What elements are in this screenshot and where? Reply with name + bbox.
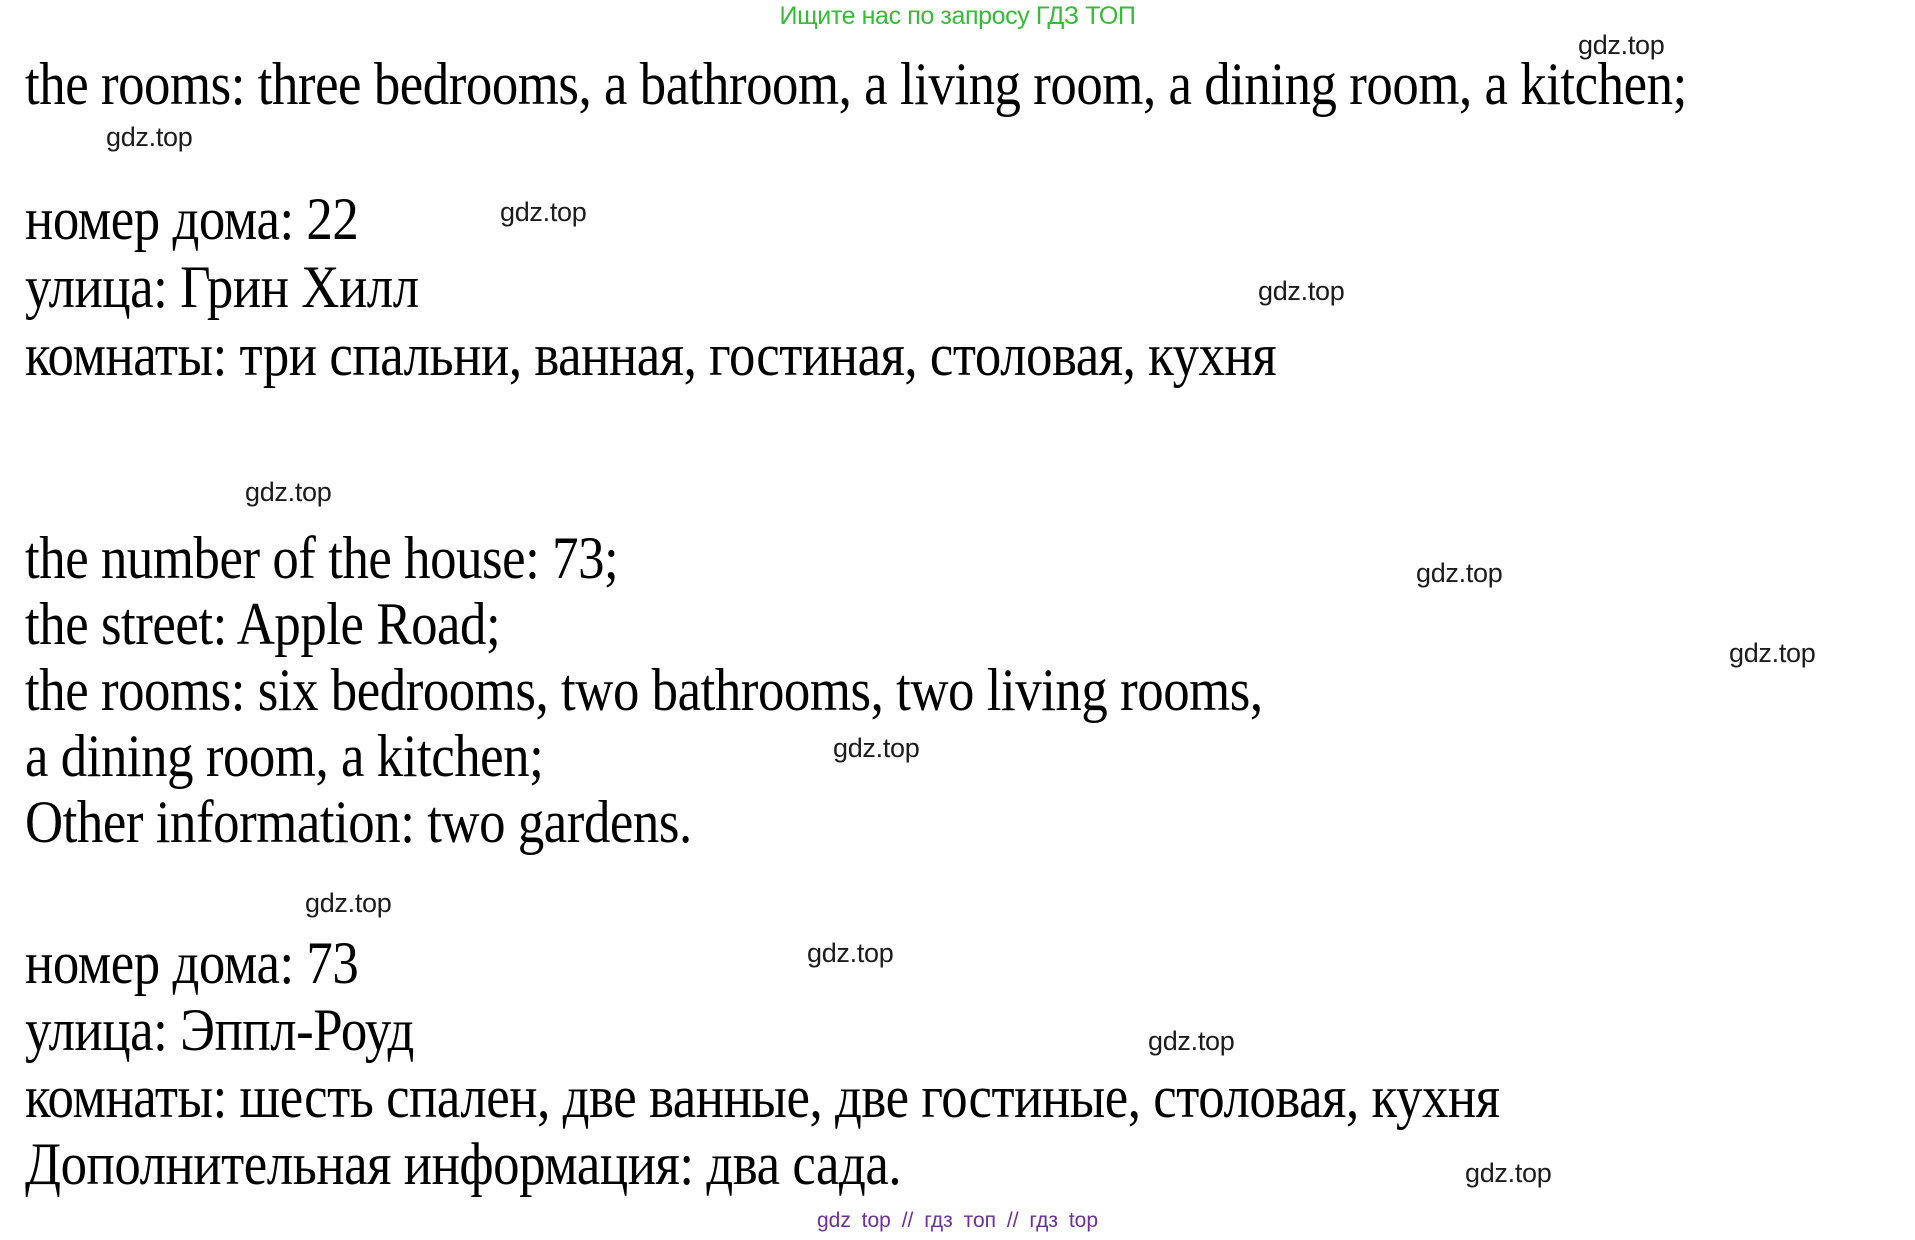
text-line: комнаты: три спальни, ванная, гостиная, … bbox=[25, 321, 1276, 389]
gdz-top-watermark: gdz.top bbox=[305, 888, 391, 919]
answer-section-english-house22: the rooms: three bedrooms, a bathroom, a… bbox=[25, 51, 1687, 117]
text-line: Other information: two gardens. bbox=[25, 789, 1263, 855]
gdz-top-watermark: gdz.top bbox=[106, 122, 192, 153]
text-line: номер дома: 73 bbox=[25, 930, 1500, 997]
text-line: the street: Apple Road; bbox=[25, 591, 1263, 657]
gdz-top-watermark: gdz.top bbox=[500, 197, 586, 228]
gdz-top-watermark: gdz.top bbox=[1258, 276, 1344, 307]
text-line: a dining room, a kitchen; bbox=[25, 723, 1263, 789]
promo-banner-text: Ищите нас по запросу ГДЗ ТОП bbox=[0, 2, 1915, 31]
answer-section-russian-house73: номер дома: 73 улица: Эппл-Роуд комнаты:… bbox=[25, 930, 1500, 1198]
document-page: Ищите нас по запросу ГДЗ ТОП the rooms: … bbox=[0, 0, 1915, 1240]
gdz-top-watermark: gdz.top bbox=[833, 733, 919, 764]
gdz-top-watermark: gdz.top bbox=[1578, 30, 1664, 61]
gdz-top-watermark: gdz.top bbox=[1729, 638, 1815, 669]
text-line: комнаты: шесть спален, две ванные, две г… bbox=[25, 1064, 1500, 1131]
gdz-top-watermark: gdz.top bbox=[1416, 558, 1502, 589]
answer-section-english-house73: the number of the house: 73; the street:… bbox=[25, 525, 1263, 855]
gdz-top-watermark: gdz.top bbox=[1148, 1026, 1234, 1057]
text-line: номер дома: 22 bbox=[25, 185, 1276, 253]
gdz-top-watermark: gdz.top bbox=[245, 477, 331, 508]
text-line: the rooms: six bedrooms, two bathrooms, … bbox=[25, 657, 1263, 723]
text-line: the number of the house: 73; bbox=[25, 525, 1263, 591]
text-line: Дополнительная информация: два сада. bbox=[25, 1131, 1500, 1198]
gdz-top-watermark: gdz.top bbox=[807, 938, 893, 969]
footer-branding: gdz top // гдз топ // гдз top bbox=[0, 1209, 1915, 1233]
gdz-top-watermark: gdz.top bbox=[1465, 1158, 1551, 1189]
answer-section-russian-house22: номер дома: 22 улица: Грин Хилл комнаты:… bbox=[25, 185, 1276, 389]
text-line: улица: Грин Хилл bbox=[25, 253, 1276, 321]
text-line: the rooms: three bedrooms, a bathroom, a… bbox=[25, 51, 1687, 117]
text-line: улица: Эппл-Роуд bbox=[25, 997, 1500, 1064]
page: { "page": { "background_color": "#ffffff… bbox=[0, 0, 1915, 1240]
